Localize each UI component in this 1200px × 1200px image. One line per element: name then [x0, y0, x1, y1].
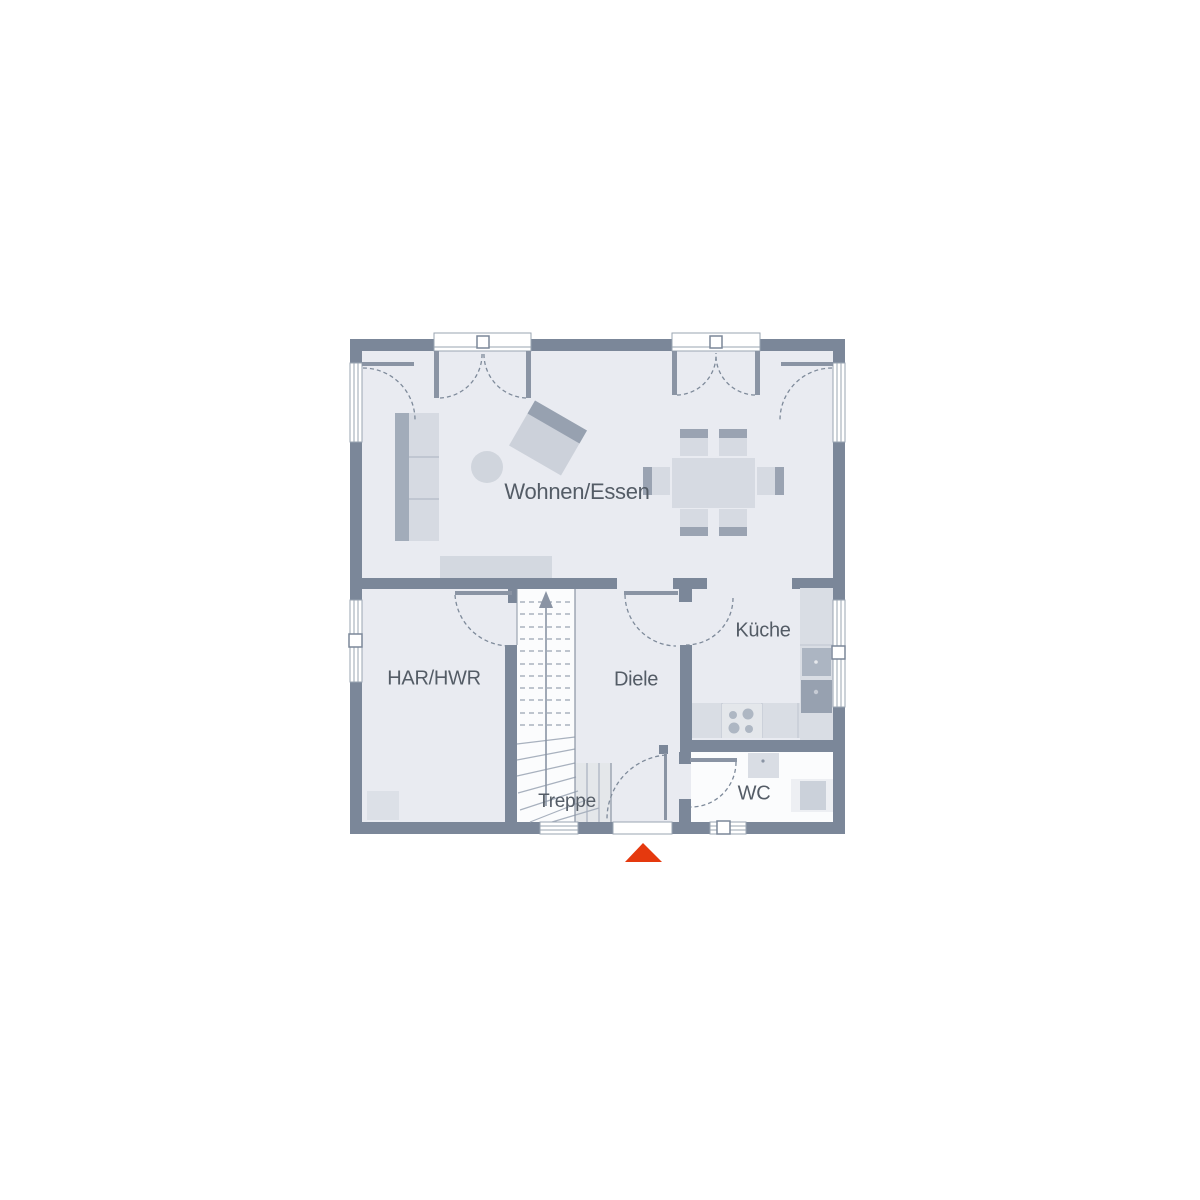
room-label-kueche: Küche: [735, 620, 790, 643]
sink-icon: [748, 753, 779, 778]
floorplan-canvas: Wohnen/Essen HAR/HWR Diele Küche Treppe …: [0, 0, 1200, 1200]
toilet-icon: [800, 781, 826, 810]
window-stair: [540, 822, 578, 834]
coffee-table: [471, 451, 503, 483]
room-label-treppe: Treppe: [538, 791, 596, 813]
window-har: [349, 600, 362, 682]
entrance-arrow-icon: [625, 843, 662, 862]
washer-icon: [367, 791, 399, 820]
room-label-wc: WC: [738, 783, 771, 806]
room-label-wohnen-essen: Wohnen/Essen: [504, 479, 649, 505]
window-kitchen: [832, 600, 845, 707]
stove-icon: [801, 680, 832, 713]
sofa: [395, 413, 439, 541]
room-label-diele: Diele: [614, 669, 658, 692]
window-wc: [710, 821, 746, 834]
cooktop-icon: [722, 704, 762, 738]
floorplan-drawing: [0, 0, 1200, 1200]
room-label-har-hwr: HAR/HWR: [387, 668, 480, 691]
sideboard: [440, 556, 552, 578]
